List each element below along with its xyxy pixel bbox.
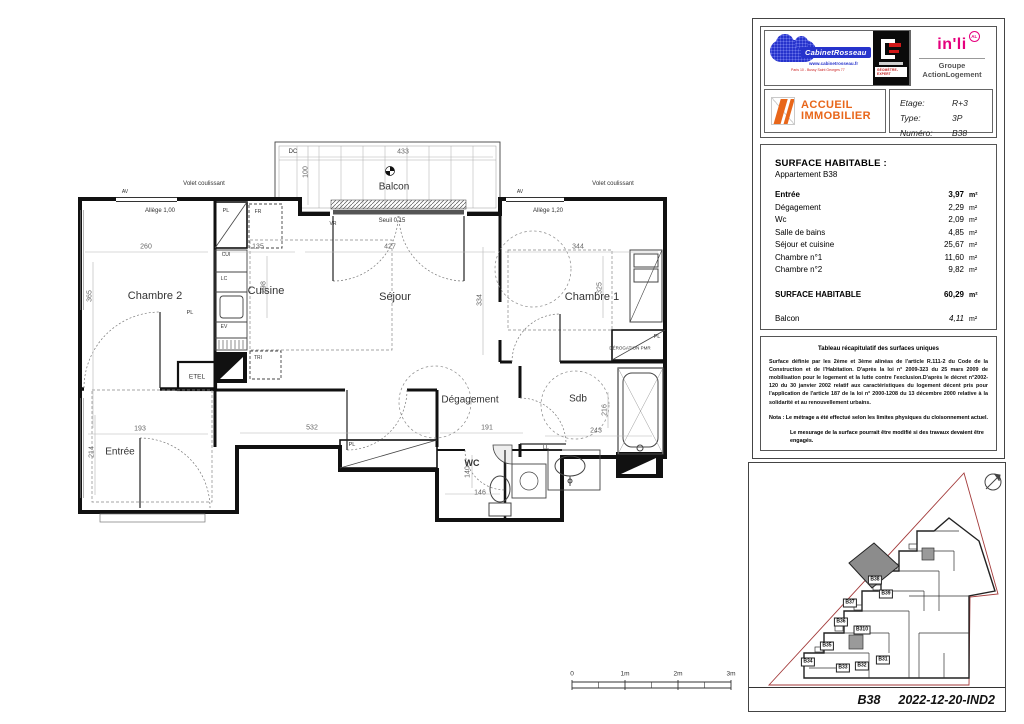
surface-title: SURFACE HABITABLE : [775,158,982,169]
surface-balcon-label: Balcon [775,313,930,325]
dim-135: 135 [252,244,264,251]
balcony-door-sill [330,200,467,218]
dim-216: 216 [602,404,609,416]
annotation-pl-chambre1: PL [654,334,661,340]
room-label-sejour: Séjour [379,291,411,303]
room-label-balcon: Balcon [379,182,410,193]
site-unit-label-b31: B31 [876,656,890,665]
scale-label-0: 0 [570,671,574,678]
north-compass-icon [985,474,1001,490]
geometre-label: GÉOMÈTRE-EXPERT [875,67,907,77]
drawing-reference-footer: B38 2022-12-20-IND2 [749,687,1005,711]
dim-193: 193 [134,426,146,433]
dim-140: 140 [465,466,472,478]
surface-label: Dégagement [775,202,930,214]
accueil-immobilier-logo: ACCUEIL IMMOBILIER [764,89,886,133]
surface-label: Entrée [775,189,930,201]
surface-value: 25,67 [930,239,964,251]
notes-panel: Tableau récapitulatif des surfaces uniqu… [760,336,997,451]
inli-wordmark: in'li [937,36,966,53]
dim-260: 260 [140,244,152,251]
dim-433: 433 [397,149,409,156]
dim-427: 427 [384,244,396,251]
surface-row-wc: Wc 2,09 m² [775,214,982,227]
dim-214: 214 [89,446,96,458]
annotation-pl-kitchen: PL [223,208,230,214]
site-unit-label-b38: B38 [868,576,882,585]
dim-146: 146 [474,490,486,497]
site-unit-label-b32: B32 [855,662,869,671]
surface-unit: m² [964,203,982,215]
surface-label: Salle de bains [775,227,930,239]
surface-panel: SURFACE HABITABLE : Appartement B38 Entr… [760,144,997,330]
room-label-degagement: Dégagement [441,395,498,406]
annotation-dc: DC [289,149,298,155]
annotation-volet-coulissant-right: Volet coulissant [592,181,634,187]
accueil-icon [771,97,795,125]
surface-total-unit: m² [964,290,982,302]
logo-panel: CabinetRosseau www.cabinetrosseau.fr Par… [760,26,997,138]
annotation-lc: LC [221,276,227,282]
surface-value: 3,97 [930,189,964,201]
scale-label-2m: 2m [673,671,682,678]
surface-subtitle: Appartement B38 [775,170,982,179]
annotation-ev: EV [221,324,228,330]
dim-191: 191 [481,425,493,432]
dim-532: 532 [306,425,318,432]
notes-nota2: Le mesurage de la surface pourrait être … [769,429,988,445]
surface-balcon-unit: m² [964,314,982,326]
surface-balcon-value: 4,11 [930,313,964,325]
surface-unit: m² [964,240,982,252]
geometre-number-line [879,62,903,65]
surface-total-label: SURFACE HABITABLE [775,289,930,301]
scale-label-3m: 3m [726,671,735,678]
surface-unit: m² [964,190,982,202]
inli-name: in'liAL [937,36,966,54]
site-unit-label-b35: B35 [820,642,834,651]
cabinet-name: CabinetRosseau [801,47,871,58]
annotation-cui: CUI [222,252,231,258]
footer-revision: 2022-12-20-IND2 [898,693,995,707]
annotation-derogation-pmr: DÉROGATION PMR [609,346,650,351]
annotation-pl-chambre2: PL [187,310,194,316]
surface-rows: Entrée 3,97 m² Dégagement 2,29 m² Wc 2,0… [775,189,982,326]
surface-unit: m² [964,253,982,265]
dim-243: 243 [590,428,602,435]
scale-label-1m: 1m [620,671,629,678]
info-label-etage: Etage: [900,98,952,108]
site-unit-label-b36: B36 [834,618,848,627]
notes-nota1: Nota : Le métrage a été effectué selon l… [769,414,988,422]
apartment-info-table: Etage: R+3 Type: 3P Numéro: B38 [889,89,993,133]
site-plan-panel: B38 B39 B37 B36 B310 B35 B34 B33 B32 B31… [748,462,1006,712]
inli-al-badge-icon: AL [969,31,980,42]
surface-row-balcon: Balcon 4,11 m² [775,313,982,326]
surface-row-degagement: Dégagement 2,29 m² [775,202,982,215]
room-label-entree: Entrée [105,447,134,458]
dim-344: 344 [572,244,584,251]
surface-row-sdb: Salle de bains 4,85 m² [775,227,982,240]
info-row-etage: Etage: R+3 [900,95,982,110]
core-block-2 [922,548,934,560]
annotation-allege-120: Allège 1,20 [533,208,563,214]
surface-value: 9,82 [930,264,964,276]
room-label-chambre1: Chambre 1 [565,291,619,303]
annotation-seuil: Seuil 0,15 [379,218,406,224]
annotation-av-left: AV [122,189,128,195]
site-unit-label-b39: B39 [879,590,893,599]
cabinet-url: www.cabinetrosseau.fr [809,61,858,66]
dim-334: 334 [477,294,484,306]
surface-value: 2,09 [930,214,964,226]
dim-325: 325 [597,282,604,294]
surface-label: Wc [775,214,930,226]
scale-bar [572,680,731,690]
annotation-vr: VR [330,221,337,227]
site-unit-label-b33: B33 [836,664,850,673]
accueil-wordmark: ACCUEIL IMMOBILIER [801,100,871,122]
cabinet-geometre-box: CabinetRosseau www.cabinetrosseau.fr Par… [764,30,910,86]
annotation-etel: ETEL [189,374,205,381]
dim-365: 365 [87,290,94,302]
surface-value: 11,60 [930,252,964,264]
site-unit-label-b310: B310 [854,626,871,635]
surface-unit: m² [964,265,982,277]
notes-paragraph: Surface définie par les 2ème et 3ème ali… [769,358,988,407]
surface-row-chambre2: Chambre n°2 9,82 m² [775,264,982,277]
annotation-fr: FR [255,209,262,215]
core-block-1 [849,635,863,649]
surface-value: 4,85 [930,227,964,239]
dim-100: 100 [303,166,310,178]
surface-row-sejour: Séjour et cuisine 25,67 m² [775,239,982,252]
room-label-sdb: Sdb [569,394,587,405]
surface-row-chambre1: Chambre n°1 11,60 m² [775,252,982,265]
inli-logo: in'liAL Groupe ActionLogement [910,30,993,86]
surface-label: Chambre n°2 [775,264,930,276]
surface-unit: m² [964,228,982,240]
annotation-volet-coulissant-left: Volet coulissant [183,181,225,187]
annotation-av-right: AV [517,189,523,195]
info-row-numero: Numéro: B38 [900,125,982,140]
cabinet-address: Paris 10 - Bussy Saint Georges 77 [791,68,845,72]
footer-unit-ref: B38 [857,693,880,707]
surface-label: Chambre n°1 [775,252,930,264]
info-row-type: Type: 3P [900,110,982,125]
surface-row-entree: Entrée 3,97 m² [775,189,982,202]
inli-group-name: Groupe ActionLogement [911,61,993,79]
geometre-expert-logo: GÉOMÈTRE-EXPERT [873,31,909,85]
annotation-ll: LL [543,445,549,451]
info-label-type: Type: [900,113,952,123]
surface-total-value: 60,29 [930,289,964,301]
surface-label: Séjour et cuisine [775,239,930,251]
info-value-type: 3P [952,113,962,123]
entry-step [100,514,205,522]
surface-value: 2,29 [930,202,964,214]
building-outline [804,518,995,678]
room-label-chambre2: Chambre 2 [128,290,182,302]
floor-plan-sheet: { "title_block": { "cabinet": { "name": … [0,0,1024,724]
annotation-allege-100: Allège 1,00 [145,208,175,214]
info-value-etage: R+3 [952,98,968,108]
site-unit-label-b34: B34 [801,658,815,667]
dim-298: 298 [261,281,268,293]
accueil-line2: IMMOBILIER [801,111,871,122]
geometre-glyph-icon [881,39,901,59]
inli-divider [919,58,985,59]
annotation-pl-hall: PL [349,442,356,448]
annotation-tri: TRI [254,355,262,361]
surface-unit: m² [964,215,982,227]
notes-title: Tableau récapitulatif des surfaces uniqu… [769,346,988,352]
info-label-numero: Numéro: [900,128,952,138]
cabinet-rosseau-logo: CabinetRosseau www.cabinetrosseau.fr Par… [765,31,873,85]
surface-row-total: SURFACE HABITABLE 60,29 m² [775,289,982,302]
site-unit-label-b37: B37 [843,599,857,608]
info-value-numero: B38 [952,128,967,138]
survey-marker-icon [386,167,395,176]
